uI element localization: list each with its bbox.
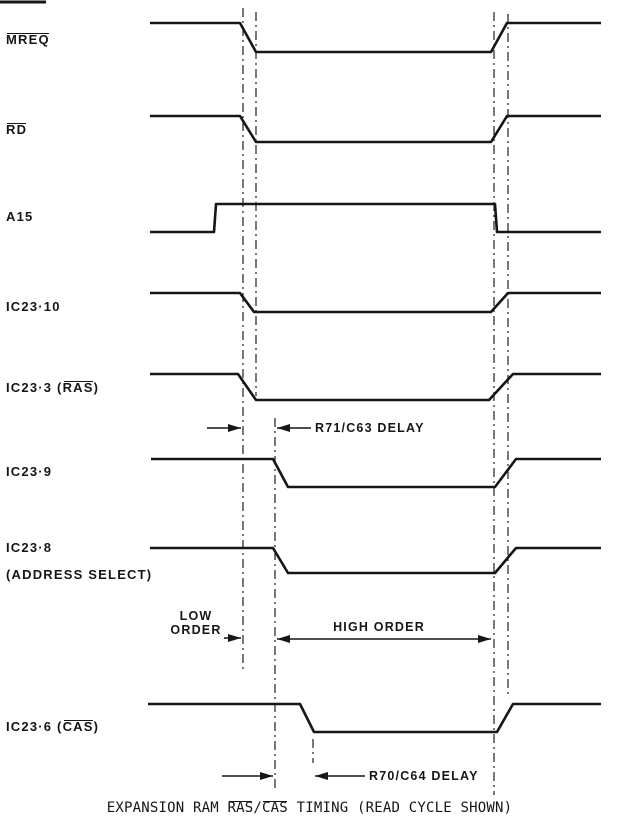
waveform-ic23-8-address-select	[150, 548, 601, 573]
diagram-caption: EXPANSION RAM RAS/CAS TIMING (READ CYCLE…	[0, 799, 619, 817]
waveform-mreq	[150, 23, 601, 52]
annotation-low-order: LOWORDER	[170, 609, 221, 637]
waveform-ic23-9	[151, 459, 601, 487]
annotation-r71-c63-delay: R71/C63 DELAY	[315, 421, 425, 435]
arrowhead	[478, 635, 491, 643]
waveform-rd	[150, 116, 601, 142]
caption-text: /	[253, 800, 262, 816]
label-text: A15	[6, 209, 33, 224]
label-text: )	[94, 380, 100, 395]
arrowhead	[228, 634, 241, 642]
timing-diagram-page: MREQ RD A15 IC23·10 IC23·3 (RAS) IC23·9 …	[0, 0, 619, 828]
waveform-canvas	[0, 0, 619, 828]
label-overline-text: CAS	[63, 719, 94, 734]
label-text: IC23·8	[6, 540, 52, 555]
annotation-line: LOW	[170, 609, 221, 623]
annotation-r70-c64-delay: R70/C64 DELAY	[369, 769, 479, 783]
label-text: IC23·10	[6, 299, 61, 314]
arrowhead	[277, 635, 290, 643]
arrowhead	[315, 772, 328, 780]
waveform-ic23-10	[150, 293, 601, 312]
arrowhead	[228, 424, 241, 432]
waveform-ic23-6-cas	[148, 704, 601, 732]
signal-label-ic23-10: IC23·10	[6, 298, 61, 315]
caption-text: TIMING (READ CYCLE SHOWN)	[288, 800, 512, 816]
arrowhead	[277, 424, 290, 432]
signal-label-ic23-8: IC23·8(ADDRESS SELECT)	[6, 539, 152, 583]
signal-label-mreq: MREQ	[6, 31, 50, 48]
arrowhead	[260, 772, 273, 780]
caption-ras-overline: RAS	[228, 800, 254, 816]
label-text: IC23·3 (	[6, 380, 63, 395]
label-overline-text: RAS	[63, 380, 94, 395]
waveform-ic23-3-ras	[150, 374, 601, 400]
signal-label-ic23-9: IC23·9	[6, 463, 52, 480]
caption-text: EXPANSION RAM	[107, 800, 228, 816]
label-text: IC23·6 (	[6, 719, 63, 734]
label-overline-text: MREQ	[6, 32, 50, 47]
signal-label-rd: RD	[6, 121, 27, 138]
signal-label-ic23-3-ras: IC23·3 (RAS)	[6, 379, 99, 396]
label-text: IC23·9	[6, 464, 52, 479]
label-overline-text: RD	[6, 122, 27, 137]
signal-label-a15: A15	[6, 208, 33, 225]
waveform-a15	[150, 204, 601, 232]
label-text: )	[94, 719, 100, 734]
caption-cas-overline: CAS	[262, 800, 288, 816]
annotation-high-order: HIGH ORDER	[333, 620, 425, 634]
label-second-line: (ADDRESS SELECT)	[6, 566, 152, 583]
annotation-line: ORDER	[170, 623, 221, 637]
signal-label-ic23-6-cas: IC23·6 (CAS)	[6, 718, 99, 735]
